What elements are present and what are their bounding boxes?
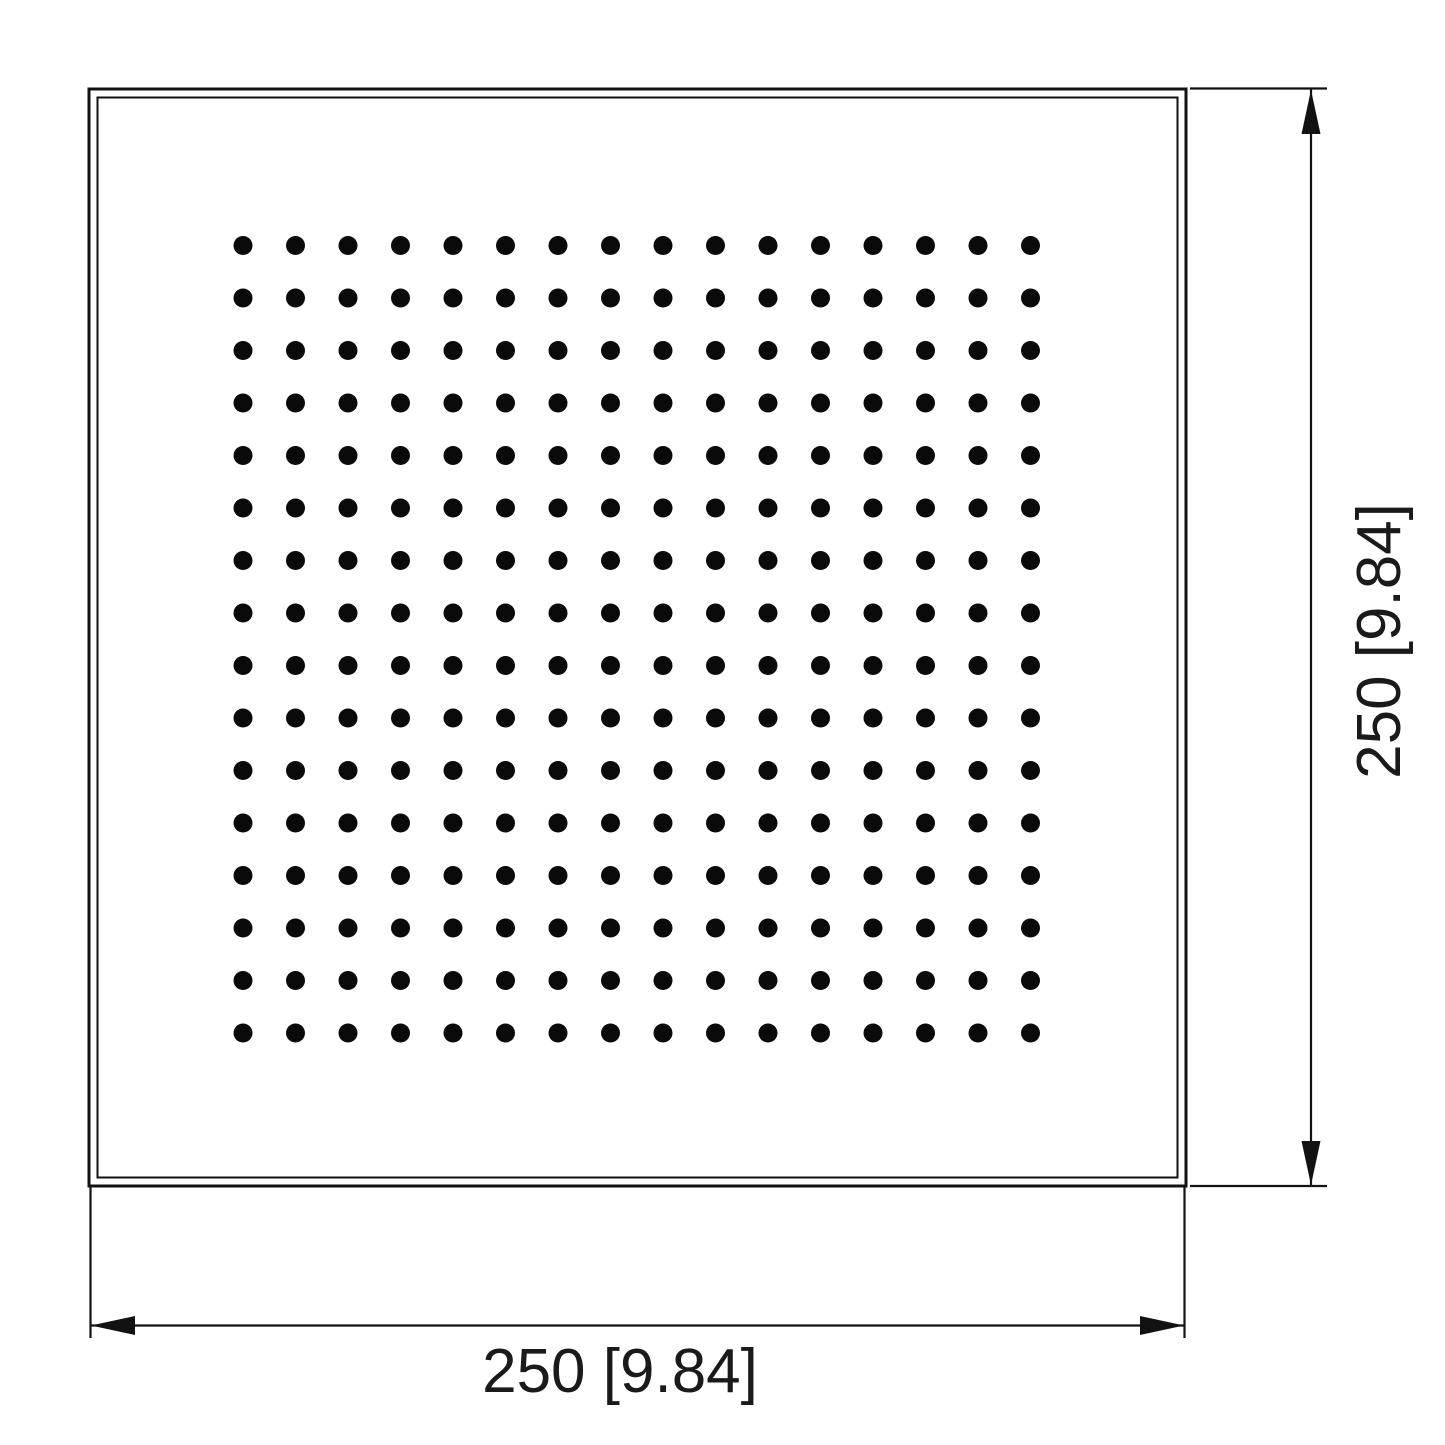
nozzle-dot bbox=[1021, 394, 1040, 413]
nozzle-dot bbox=[601, 709, 620, 728]
nozzle-dot bbox=[864, 604, 883, 623]
nozzle-dot bbox=[811, 919, 830, 938]
nozzle-dot bbox=[654, 971, 673, 990]
nozzle-dot bbox=[969, 551, 988, 570]
nozzle-dot bbox=[601, 1024, 620, 1043]
nozzle-dot bbox=[654, 289, 673, 308]
nozzle-dot bbox=[391, 341, 410, 360]
nozzle-dot bbox=[1021, 761, 1040, 780]
faceplate-outline bbox=[89, 89, 1186, 1186]
nozzle-dot bbox=[916, 709, 935, 728]
nozzle-dot bbox=[444, 446, 463, 465]
nozzle-dot bbox=[706, 551, 725, 570]
nozzle-dot bbox=[706, 1024, 725, 1043]
nozzle-dot bbox=[286, 709, 305, 728]
nozzle-dot bbox=[601, 446, 620, 465]
nozzle-dot bbox=[444, 866, 463, 885]
nozzle-dot bbox=[496, 1024, 515, 1043]
nozzle-dot bbox=[339, 289, 358, 308]
nozzle-dot bbox=[444, 656, 463, 675]
nozzle-dot bbox=[339, 1024, 358, 1043]
nozzle-dot bbox=[496, 656, 515, 675]
nozzle-dot bbox=[496, 814, 515, 833]
nozzle-dot bbox=[864, 971, 883, 990]
nozzle-dot bbox=[916, 499, 935, 518]
height-dimension-label: 250 [9.84] bbox=[1345, 503, 1414, 779]
nozzle-dot bbox=[654, 1024, 673, 1043]
nozzle-dot bbox=[1021, 919, 1040, 938]
nozzle-dot bbox=[601, 814, 620, 833]
nozzle-dot bbox=[706, 709, 725, 728]
nozzle-dot bbox=[444, 604, 463, 623]
nozzle-dot bbox=[759, 866, 778, 885]
nozzle-dot bbox=[864, 709, 883, 728]
nozzle-dot bbox=[1021, 341, 1040, 360]
nozzle-dot bbox=[969, 656, 988, 675]
nozzle-dot bbox=[496, 761, 515, 780]
nozzle-dot bbox=[1021, 236, 1040, 255]
nozzle-dot bbox=[496, 971, 515, 990]
nozzle-dot bbox=[706, 866, 725, 885]
nozzle-dot bbox=[286, 289, 305, 308]
nozzle-dot bbox=[339, 866, 358, 885]
nozzle-dot bbox=[444, 1024, 463, 1043]
nozzle-dot bbox=[969, 236, 988, 255]
nozzle-dot bbox=[1021, 604, 1040, 623]
nozzle-dot bbox=[391, 1024, 410, 1043]
nozzle-dot bbox=[391, 709, 410, 728]
nozzle-dot bbox=[286, 1024, 305, 1043]
nozzle-dot bbox=[286, 656, 305, 675]
nozzle-dot bbox=[391, 499, 410, 518]
nozzle-dot bbox=[496, 709, 515, 728]
nozzle-dot bbox=[916, 656, 935, 675]
nozzle-dot bbox=[601, 919, 620, 938]
nozzle-dot bbox=[706, 761, 725, 780]
nozzle-dot bbox=[496, 866, 515, 885]
nozzle-dot bbox=[234, 289, 253, 308]
nozzle-dot bbox=[654, 499, 673, 518]
nozzle-dot bbox=[916, 814, 935, 833]
nozzle-dot bbox=[969, 289, 988, 308]
nozzle-dot bbox=[969, 604, 988, 623]
nozzle-dot bbox=[969, 1024, 988, 1043]
nozzle-dot bbox=[1021, 656, 1040, 675]
nozzle-dot bbox=[654, 761, 673, 780]
nozzle-dot bbox=[654, 341, 673, 360]
nozzle-dot bbox=[759, 446, 778, 465]
nozzle-dot bbox=[811, 761, 830, 780]
nozzle-dot bbox=[759, 971, 778, 990]
nozzle-dot bbox=[496, 341, 515, 360]
nozzle-dot bbox=[1021, 289, 1040, 308]
nozzle-dot bbox=[601, 761, 620, 780]
nozzle-dot bbox=[654, 866, 673, 885]
nozzle-dot bbox=[391, 919, 410, 938]
faceplate bbox=[89, 89, 1186, 1186]
nozzle-dot bbox=[391, 551, 410, 570]
nozzle-dot bbox=[916, 236, 935, 255]
nozzle-dot bbox=[864, 761, 883, 780]
nozzle-dot bbox=[706, 604, 725, 623]
nozzle-dot bbox=[864, 446, 883, 465]
nozzle-dot bbox=[706, 446, 725, 465]
nozzle-grid bbox=[234, 236, 1041, 1043]
nozzle-dot bbox=[601, 971, 620, 990]
nozzle-dot bbox=[759, 919, 778, 938]
nozzle-dot bbox=[601, 604, 620, 623]
nozzle-dot bbox=[339, 341, 358, 360]
nozzle-dot bbox=[391, 446, 410, 465]
nozzle-dot bbox=[234, 236, 253, 255]
nozzle-dot bbox=[286, 394, 305, 413]
nozzle-dot bbox=[759, 341, 778, 360]
nozzle-dot bbox=[286, 499, 305, 518]
nozzle-dot bbox=[864, 551, 883, 570]
nozzle-dot bbox=[444, 289, 463, 308]
nozzle-dot bbox=[444, 971, 463, 990]
nozzle-dot bbox=[916, 394, 935, 413]
nozzle-dot bbox=[969, 341, 988, 360]
nozzle-dot bbox=[339, 919, 358, 938]
nozzle-dot bbox=[286, 866, 305, 885]
nozzle-dot bbox=[549, 866, 568, 885]
nozzle-dot bbox=[864, 394, 883, 413]
nozzle-dot bbox=[234, 814, 253, 833]
arrowhead-down-icon bbox=[1302, 1141, 1321, 1185]
nozzle-dot bbox=[444, 499, 463, 518]
nozzle-dot bbox=[234, 971, 253, 990]
nozzle-dot bbox=[969, 971, 988, 990]
nozzle-dot bbox=[654, 551, 673, 570]
nozzle-dot bbox=[811, 814, 830, 833]
faceplate-inner-outline bbox=[98, 98, 1178, 1178]
nozzle-dot bbox=[916, 919, 935, 938]
nozzle-dot bbox=[601, 236, 620, 255]
width-dimension: 250 [9.84] bbox=[91, 1187, 1185, 1406]
nozzle-dot bbox=[444, 236, 463, 255]
nozzle-dot bbox=[811, 971, 830, 990]
nozzle-dot bbox=[496, 919, 515, 938]
nozzle-dot bbox=[601, 866, 620, 885]
nozzle-dot bbox=[811, 604, 830, 623]
nozzle-dot bbox=[654, 446, 673, 465]
nozzle-dot bbox=[706, 919, 725, 938]
nozzle-dot bbox=[286, 919, 305, 938]
nozzle-dot bbox=[286, 236, 305, 255]
nozzle-dot bbox=[496, 604, 515, 623]
nozzle-dot bbox=[444, 919, 463, 938]
nozzle-dot bbox=[864, 289, 883, 308]
nozzle-dot bbox=[811, 551, 830, 570]
nozzle-dot bbox=[549, 709, 568, 728]
nozzle-dot bbox=[759, 1024, 778, 1043]
nozzle-dot bbox=[706, 341, 725, 360]
nozzle-dot bbox=[811, 236, 830, 255]
nozzle-dot bbox=[1021, 551, 1040, 570]
nozzle-dot bbox=[496, 236, 515, 255]
nozzle-dot bbox=[549, 341, 568, 360]
nozzle-dot bbox=[601, 341, 620, 360]
nozzle-dot bbox=[759, 289, 778, 308]
nozzle-dot bbox=[549, 604, 568, 623]
nozzle-dot bbox=[654, 656, 673, 675]
nozzle-dot bbox=[1021, 446, 1040, 465]
nozzle-dot bbox=[706, 394, 725, 413]
nozzle-dot bbox=[549, 236, 568, 255]
nozzle-dot bbox=[916, 1024, 935, 1043]
nozzle-dot bbox=[601, 551, 620, 570]
nozzle-dot bbox=[549, 656, 568, 675]
nozzle-dot bbox=[1021, 971, 1040, 990]
nozzle-dot bbox=[391, 236, 410, 255]
nozzle-dot bbox=[811, 341, 830, 360]
nozzle-dot bbox=[1021, 866, 1040, 885]
nozzle-dot bbox=[759, 814, 778, 833]
nozzle-dot bbox=[444, 761, 463, 780]
nozzle-dot bbox=[916, 866, 935, 885]
nozzle-dot bbox=[444, 341, 463, 360]
nozzle-dot bbox=[234, 1024, 253, 1043]
nozzle-dot bbox=[549, 551, 568, 570]
nozzle-dot bbox=[969, 866, 988, 885]
nozzle-dot bbox=[339, 236, 358, 255]
nozzle-dot bbox=[549, 919, 568, 938]
nozzle-dot bbox=[286, 341, 305, 360]
nozzle-dot bbox=[391, 604, 410, 623]
nozzle-dot bbox=[496, 446, 515, 465]
nozzle-dot bbox=[339, 551, 358, 570]
nozzle-dot bbox=[339, 499, 358, 518]
technical-drawing-page: 250 [9.84] 250 [9.84] bbox=[0, 0, 1445, 1445]
nozzle-dot bbox=[339, 394, 358, 413]
nozzle-dot bbox=[286, 551, 305, 570]
nozzle-dot bbox=[864, 1024, 883, 1043]
nozzle-dot bbox=[706, 289, 725, 308]
nozzle-dot bbox=[601, 394, 620, 413]
nozzle-dot bbox=[969, 761, 988, 780]
nozzle-dot bbox=[864, 236, 883, 255]
nozzle-dot bbox=[759, 551, 778, 570]
nozzle-dot bbox=[1021, 1024, 1040, 1043]
nozzle-dot bbox=[391, 394, 410, 413]
nozzle-dot bbox=[706, 656, 725, 675]
width-dimension-label: 250 [9.84] bbox=[482, 1337, 758, 1406]
nozzle-dot bbox=[811, 394, 830, 413]
nozzle-dot bbox=[339, 604, 358, 623]
nozzle-dot bbox=[916, 761, 935, 780]
nozzle-dot bbox=[549, 499, 568, 518]
nozzle-dot bbox=[601, 499, 620, 518]
nozzle-dot bbox=[969, 446, 988, 465]
nozzle-dot bbox=[549, 289, 568, 308]
nozzle-dot bbox=[654, 709, 673, 728]
nozzle-dot bbox=[234, 604, 253, 623]
nozzle-dot bbox=[234, 499, 253, 518]
nozzle-dot bbox=[759, 236, 778, 255]
nozzle-dot bbox=[864, 656, 883, 675]
nozzle-dot bbox=[286, 971, 305, 990]
nozzle-dot bbox=[339, 446, 358, 465]
nozzle-dot bbox=[916, 341, 935, 360]
nozzle-dot bbox=[916, 604, 935, 623]
nozzle-dot bbox=[286, 446, 305, 465]
nozzle-dot bbox=[916, 971, 935, 990]
nozzle-dot bbox=[759, 709, 778, 728]
nozzle-dot bbox=[339, 656, 358, 675]
nozzle-dot bbox=[234, 446, 253, 465]
arrowhead-up-icon bbox=[1302, 90, 1321, 134]
nozzle-dot bbox=[549, 446, 568, 465]
nozzle-dot bbox=[391, 814, 410, 833]
nozzle-dot bbox=[654, 919, 673, 938]
nozzle-dot bbox=[234, 341, 253, 360]
nozzle-dot bbox=[969, 709, 988, 728]
nozzle-dot bbox=[916, 289, 935, 308]
nozzle-dot bbox=[549, 1024, 568, 1043]
nozzle-dot bbox=[916, 446, 935, 465]
nozzle-dot bbox=[654, 394, 673, 413]
nozzle-dot bbox=[339, 971, 358, 990]
nozzle-dot bbox=[339, 709, 358, 728]
nozzle-dot bbox=[234, 709, 253, 728]
nozzle-dot bbox=[391, 289, 410, 308]
nozzle-dot bbox=[1021, 499, 1040, 518]
nozzle-dot bbox=[811, 499, 830, 518]
nozzle-dot bbox=[234, 761, 253, 780]
nozzle-dot bbox=[391, 656, 410, 675]
nozzle-dot bbox=[234, 551, 253, 570]
nozzle-dot bbox=[549, 814, 568, 833]
nozzle-dot bbox=[759, 499, 778, 518]
nozzle-dot bbox=[654, 236, 673, 255]
nozzle-dot bbox=[706, 499, 725, 518]
nozzle-dot bbox=[1021, 814, 1040, 833]
arrowhead-left-icon bbox=[91, 1316, 135, 1335]
nozzle-dot bbox=[706, 971, 725, 990]
nozzle-dot bbox=[286, 761, 305, 780]
nozzle-dot bbox=[1021, 709, 1040, 728]
nozzle-dot bbox=[706, 236, 725, 255]
nozzle-dot bbox=[496, 289, 515, 308]
nozzle-dot bbox=[706, 814, 725, 833]
nozzle-dot bbox=[969, 394, 988, 413]
nozzle-dot bbox=[864, 499, 883, 518]
nozzle-dot bbox=[286, 814, 305, 833]
nozzle-dot bbox=[654, 604, 673, 623]
nozzle-dot bbox=[339, 814, 358, 833]
nozzle-dot bbox=[391, 761, 410, 780]
technical-drawing-canvas: 250 [9.84] 250 [9.84] bbox=[0, 0, 1445, 1445]
nozzle-dot bbox=[759, 394, 778, 413]
nozzle-dot bbox=[391, 971, 410, 990]
nozzle-dot bbox=[234, 394, 253, 413]
nozzle-dot bbox=[391, 866, 410, 885]
arrowhead-right-icon bbox=[1140, 1316, 1184, 1335]
nozzle-dot bbox=[496, 394, 515, 413]
nozzle-dot bbox=[234, 866, 253, 885]
nozzle-dot bbox=[444, 709, 463, 728]
nozzle-dot bbox=[444, 551, 463, 570]
nozzle-dot bbox=[864, 919, 883, 938]
nozzle-dot bbox=[654, 814, 673, 833]
nozzle-dot bbox=[811, 656, 830, 675]
nozzle-dot bbox=[969, 814, 988, 833]
nozzle-dot bbox=[234, 656, 253, 675]
nozzle-dot bbox=[759, 761, 778, 780]
nozzle-dot bbox=[811, 709, 830, 728]
nozzle-dot bbox=[549, 761, 568, 780]
height-dimension: 250 [9.84] bbox=[1190, 89, 1414, 1187]
nozzle-dot bbox=[811, 446, 830, 465]
nozzle-dot bbox=[969, 919, 988, 938]
nozzle-dot bbox=[286, 604, 305, 623]
nozzle-dot bbox=[864, 866, 883, 885]
nozzle-dot bbox=[601, 289, 620, 308]
nozzle-dot bbox=[864, 814, 883, 833]
nozzle-dot bbox=[496, 551, 515, 570]
nozzle-dot bbox=[969, 499, 988, 518]
nozzle-dot bbox=[549, 394, 568, 413]
nozzle-dot bbox=[811, 866, 830, 885]
nozzle-dot bbox=[759, 656, 778, 675]
nozzle-dot bbox=[549, 971, 568, 990]
nozzle-dot bbox=[444, 814, 463, 833]
nozzle-dot bbox=[864, 341, 883, 360]
nozzle-dot bbox=[496, 499, 515, 518]
nozzle-dot bbox=[811, 1024, 830, 1043]
nozzle-dot bbox=[339, 761, 358, 780]
nozzle-dot bbox=[444, 394, 463, 413]
nozzle-dot bbox=[601, 656, 620, 675]
nozzle-dot bbox=[916, 551, 935, 570]
nozzle-dot bbox=[234, 919, 253, 938]
nozzle-dot bbox=[811, 289, 830, 308]
nozzle-dot bbox=[759, 604, 778, 623]
